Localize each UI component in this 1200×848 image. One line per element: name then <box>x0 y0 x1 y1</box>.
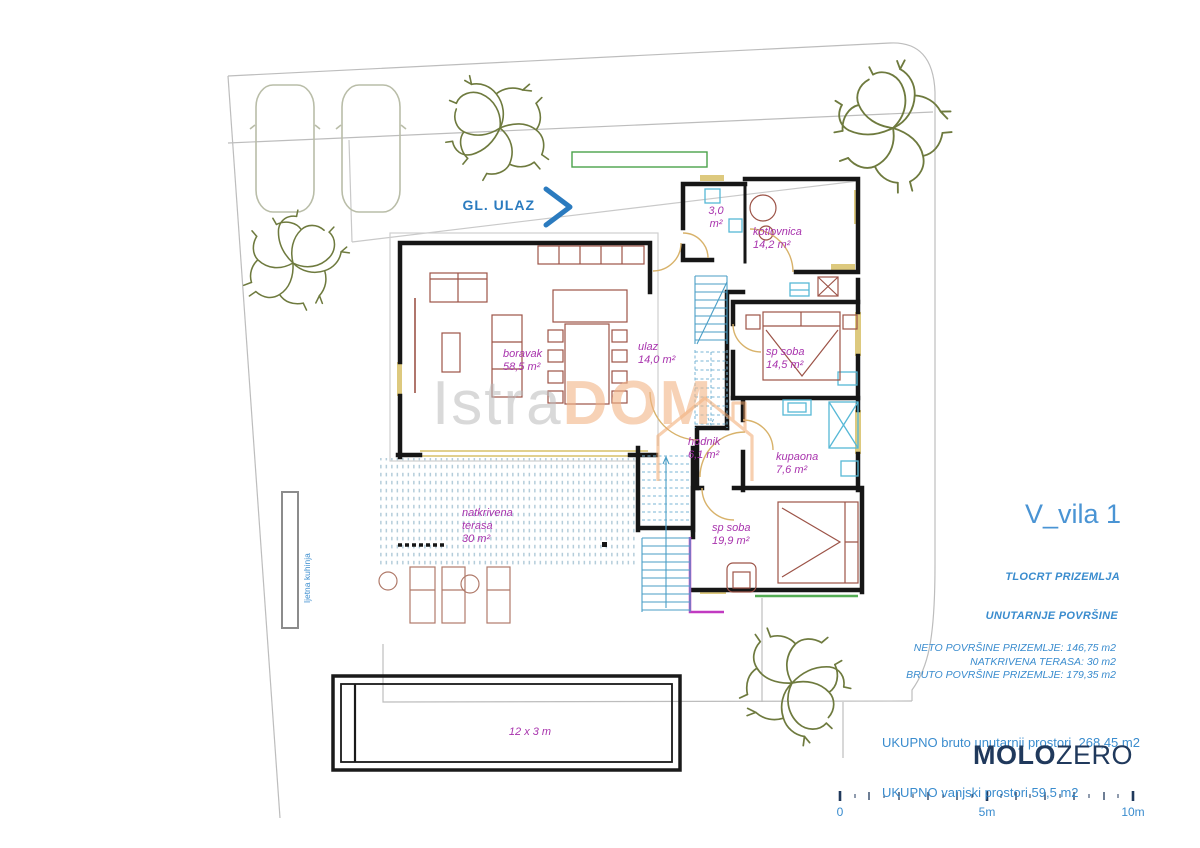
room-area: 6,1 m² <box>688 449 720 462</box>
room-area: 14,0 m² <box>638 354 675 367</box>
scale-label-10m: 10m <box>1113 805 1153 819</box>
room-label-ulaz: ulaz 14,0 m² <box>638 341 675 367</box>
room-name: boravak <box>503 348 542 361</box>
scale-label-0: 0 <box>830 805 850 819</box>
room-label-boravak: boravak 58,5 m² <box>503 348 542 374</box>
room-name: kupaona <box>776 451 818 464</box>
room-label-sp-soba-2: sp soba 19,9 m² <box>712 522 751 548</box>
room-area: 19,9 m² <box>712 535 751 548</box>
drawing-title: V_vila 1 <box>1013 499 1133 530</box>
room-name: natkrivena <box>462 507 513 520</box>
room-label-terasa: natkrivena terasa 30 m² <box>462 507 513 546</box>
room-area: 14,2 m² <box>753 239 802 252</box>
room-label-kupaona: kupaona 7,6 m² <box>776 451 818 477</box>
room-area: 58,5 m² <box>503 361 542 374</box>
brand-logo: MOLOZERO <box>933 740 1133 771</box>
room-name: sp soba <box>712 522 751 535</box>
drawing-name: TLOCRT PRIZEMLJA <box>980 571 1120 583</box>
room-name: kotlovnica <box>753 226 802 239</box>
hedge-outline <box>572 152 707 167</box>
parked-cars <box>250 85 406 212</box>
watermark-part1: Istra <box>432 369 563 438</box>
floor-plan-canvas: IstraDOM GL. ULAZ boravak 58,5 m² ulaz 1… <box>0 0 1200 848</box>
brand-light: ZERO <box>1056 740 1133 770</box>
room-area: 30 m² <box>462 533 513 546</box>
stat-line: NETO POVRŠINE PRIZEMLJE: 146,75 m2 <box>860 642 1116 656</box>
pool <box>333 676 680 770</box>
area-stats: NETO POVRŠINE PRIZEMLJE: 146,75 m2 NATKR… <box>860 642 1116 683</box>
room-name: terasa <box>462 520 513 533</box>
pool-dimensions-label: 12 x 3 m <box>490 726 570 738</box>
total-line: UKUPNO vanjski prostori 59,5 m2 <box>882 785 1140 802</box>
room-name: 3,0 <box>700 205 732 218</box>
room-label-wc: 3,0 m² <box>700 205 732 231</box>
room-label-hodnik: hodnik 6,1 m² <box>688 436 720 462</box>
summer-kitchen-label: ljetna kuhinja <box>302 533 312 623</box>
stat-line: BRUTO POVRŠINE PRIZEMLJE: 179,35 m2 <box>860 669 1116 683</box>
section-heading: UNUTARNJE POVRŠINE <box>958 610 1118 622</box>
room-area: 7,6 m² <box>776 464 818 477</box>
room-label-sp-soba-1: sp soba 14,5 m² <box>766 346 805 372</box>
room-name: hodnik <box>688 436 720 449</box>
brand-bold: MOLO <box>973 740 1056 770</box>
watermark: IstraDOM <box>432 368 713 439</box>
room-name: ulaz <box>638 341 675 354</box>
stat-line: NATKRIVENA TERASA: 30 m2 <box>860 656 1116 670</box>
room-label-kotlovnica: kotlovnica 14,2 m² <box>753 226 802 252</box>
room-name: sp soba <box>766 346 805 359</box>
sun-loungers <box>379 567 510 623</box>
room-area: 14,5 m² <box>766 359 805 372</box>
scale-label-5m: 5m <box>972 805 1002 819</box>
entrance-arrow-icon <box>546 189 570 225</box>
room-area: m² <box>700 218 732 231</box>
main-entrance-label: GL. ULAZ <box>420 197 535 213</box>
summer-kitchen-counter <box>282 492 298 628</box>
watermark-part2: DOM <box>563 369 714 438</box>
